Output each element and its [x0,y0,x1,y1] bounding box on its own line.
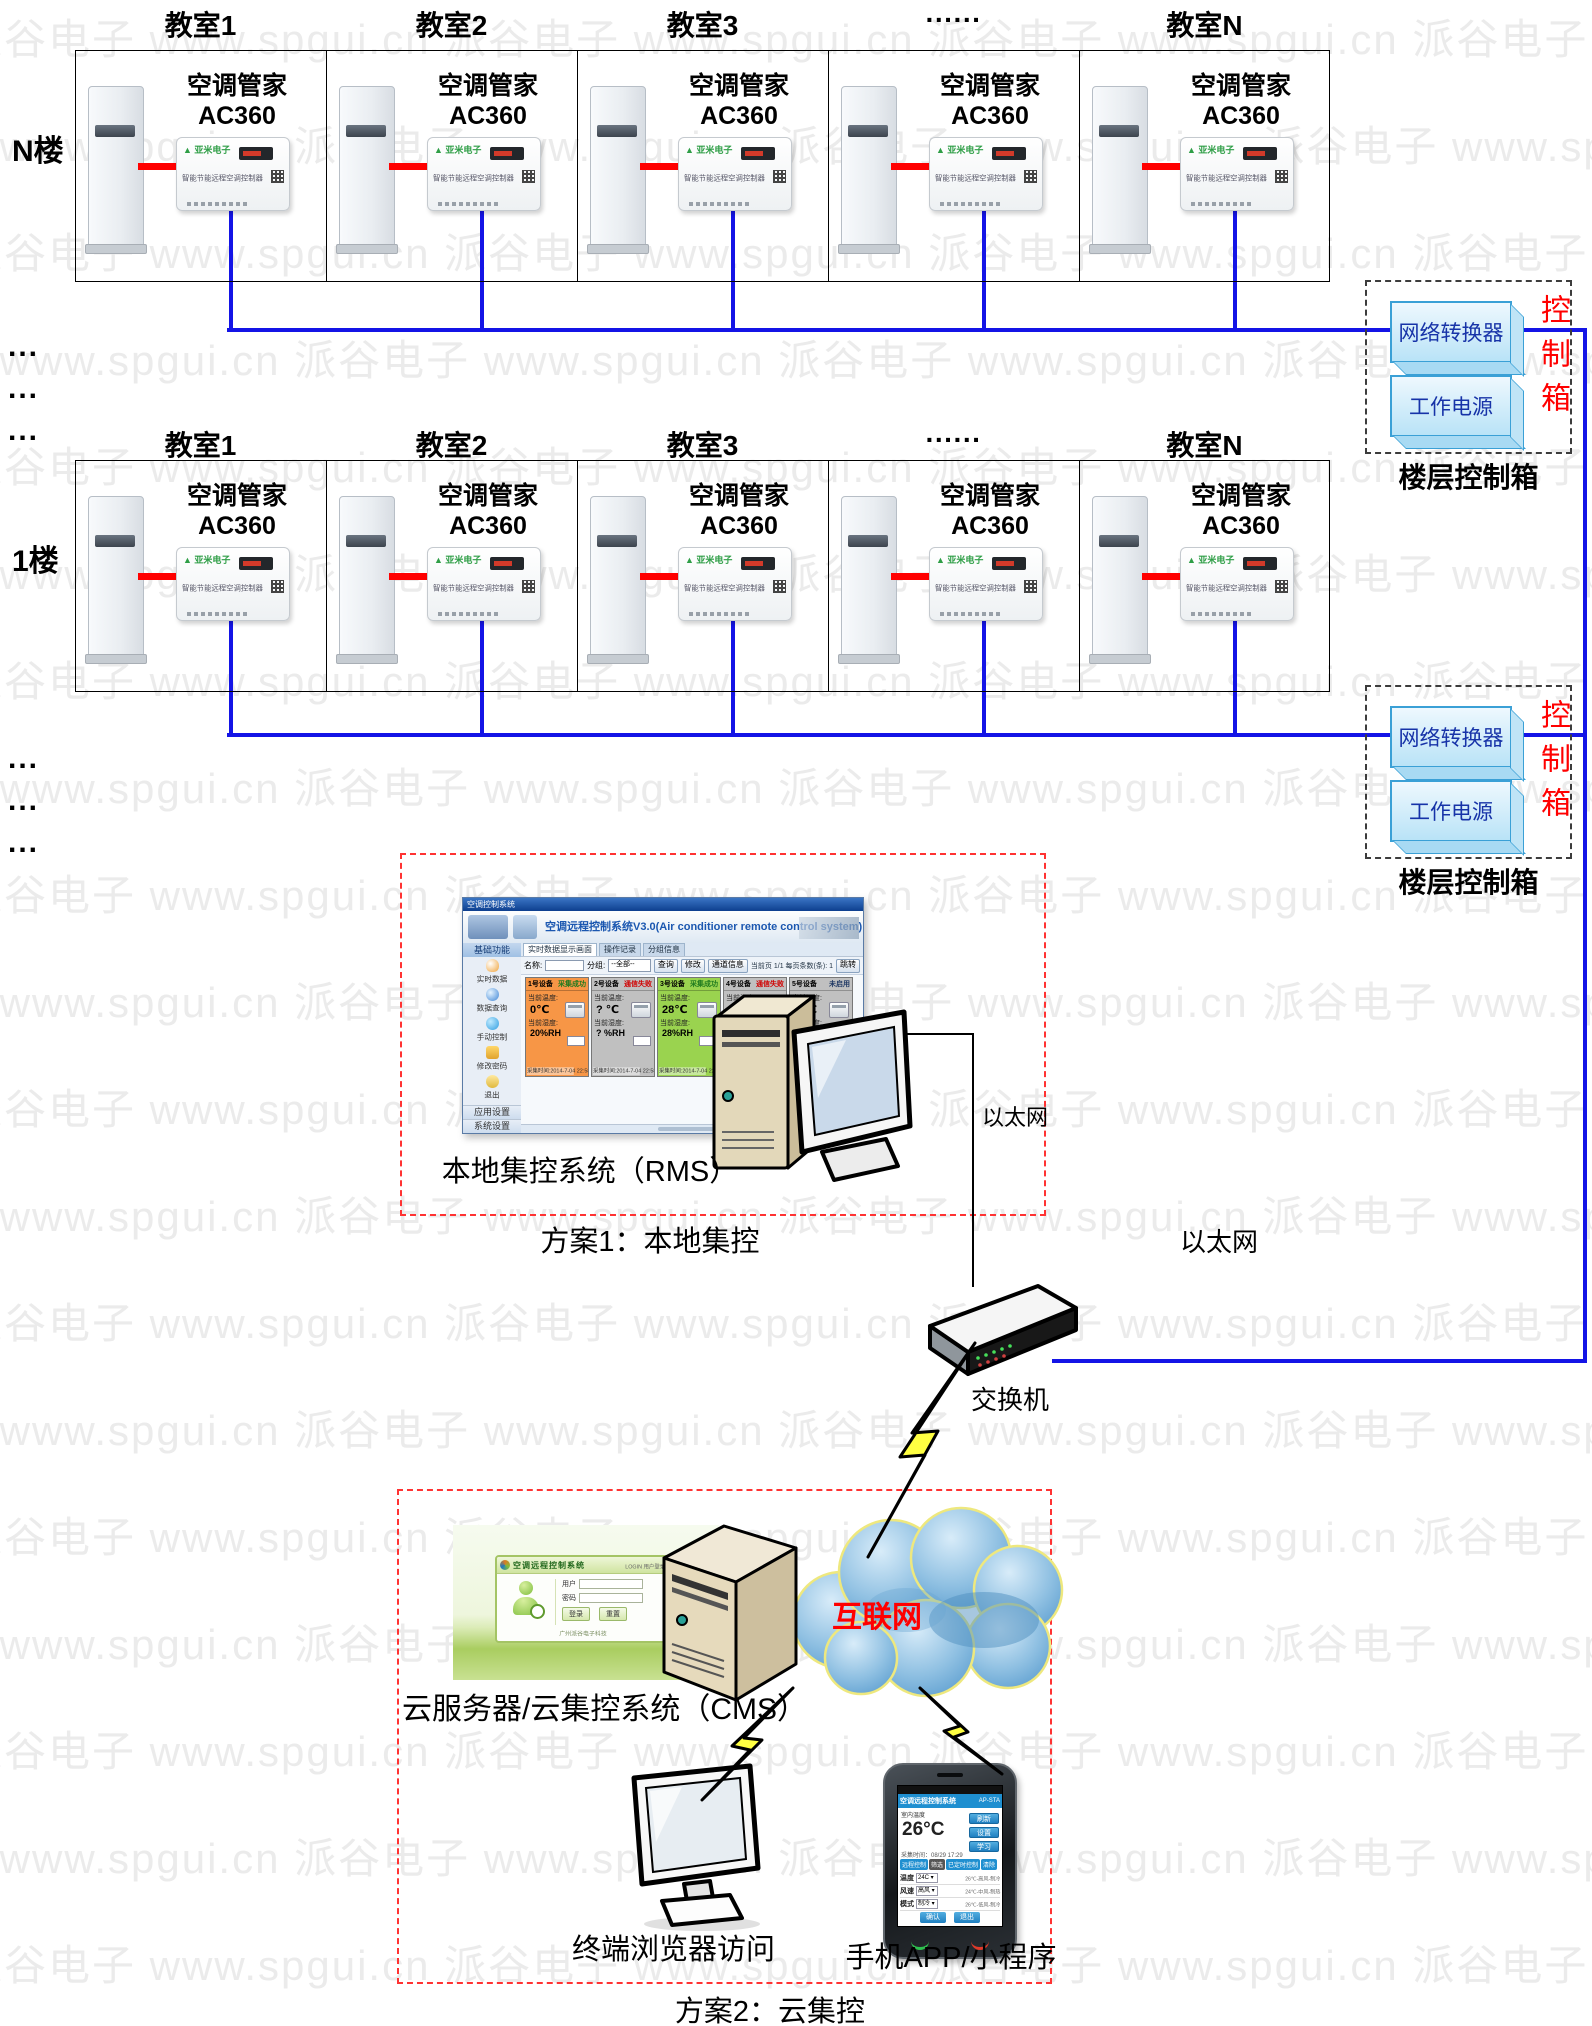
cms-login-header: 空调远程控制系统 LOGIN 用户登录 [497,1557,669,1574]
ac360-label-line1: 空调管家 [403,71,573,101]
classroom-header: 教室N [1079,424,1330,464]
ac360-label-line1: 空调管家 [654,481,824,511]
search-icon [486,988,499,1001]
device-name: 2号设备 [594,979,619,990]
app-row-select[interactable]: 24C ▾ [916,1873,938,1883]
ac-to-controller-cable [138,573,178,580]
ac360-controller-image: ▲ 亚米电子智能节能远程空调控制器 [929,547,1043,621]
air-conditioner-image [88,496,144,658]
cms-user-label: 用户 [562,1579,576,1589]
air-conditioner-image [339,86,395,248]
ac360-label-line1: 空调管家 [905,71,1075,101]
cms-title: 空调远程控制系统 [513,1560,585,1571]
power-supply-box: 工作电源 [1390,780,1512,842]
led-display-icon [992,557,1026,570]
app-row-key: 模式 [900,1899,914,1909]
rms-nav-item[interactable]: 修改密码 [463,1044,521,1073]
brand-logo-icon: ▲ 亚米电子 [434,143,481,156]
qr-code-icon [271,170,284,183]
power-supply-box: 工作电源 [1390,375,1512,437]
watermark-text: 派谷电子 www.spgui.cn 派谷电子 www.spgui.cn 派谷电子… [0,755,1592,816]
rms-group-label: 分组: [587,960,605,971]
rms-logo-icon [468,915,508,939]
ac-to-controller-cable [640,573,680,580]
ac-to-controller-cable [389,573,429,580]
device-card-header: 2号设备通信失败 [592,978,654,991]
rms-channel-button[interactable]: 通道信息 [708,959,748,973]
scheme2-label: 方案2：云集控 [640,1988,900,2026]
rms-sidebar-bottom: 应用设置系统设置 [463,1105,521,1133]
ac360-label: 空调管家AC360 [1156,71,1326,131]
device-name: 3号设备 [660,979,685,990]
led-display-icon [490,557,524,570]
cms-login-panel: 空调远程控制系统 LOGIN 用户登录 用户 密码 登录 重置 广州派谷电子科技 [495,1555,671,1643]
led-display-icon [992,147,1026,160]
app-control-rows: 温度24C ▾26℃-高风-制冷风速高风 ▾24℃-中风-制热模式制冷 ▾26℃… [900,1872,1000,1911]
rms-nav-item[interactable]: 手动控制 [463,1015,521,1044]
ac360-label: 空调管家AC360 [654,481,824,541]
device-sample-time: 采集时间:2014-7-04 22:58:42 [527,1067,574,1075]
ac360-label-line2: AC360 [654,511,824,541]
ac360-label-line1: 空调管家 [1156,71,1326,101]
brand-logo-icon: ▲ 亚米电子 [183,143,230,156]
ac-mini-icon [631,1002,651,1018]
cms-footer: 广州派谷电子科技 [510,1630,656,1639]
rms-nav-item[interactable]: 实时数据 [463,957,521,986]
qr-code-icon [1024,580,1037,593]
device-name: 1号设备 [528,979,553,990]
qr-code-icon [1275,580,1288,593]
ac360-label-line1: 空调管家 [1156,481,1326,511]
classroom-row: 空调管家AC360▲ 亚米电子智能节能远程空调控制器空调管家AC360▲ 亚米电… [75,50,1330,282]
app-button[interactable]: 学习 [969,1841,999,1852]
ac360-controller-image: ▲ 亚米电子智能节能远程空调控制器 [678,137,792,211]
classroom-cell: 空调管家AC360▲ 亚米电子智能节能远程空调控制器 [1080,461,1331,691]
app-button[interactable]: 设置 [969,1827,999,1838]
rms-header: 空调远程控制系统V3.0(Air conditioner remote cont… [463,911,863,944]
ac360-label-line1: 空调管家 [152,71,322,101]
ac-to-controller-cable [891,573,931,580]
brand-logo-icon: ▲ 亚米电子 [1187,553,1234,566]
app-header: 空调远程控制系统 AP-STA [898,1794,1002,1808]
classroom-row: 空调管家AC360▲ 亚米电子智能节能远程空调控制器空调管家AC360▲ 亚米电… [75,460,1330,692]
scheme1-label: 方案1：本地集控 [460,1218,840,1260]
classroom-header: ······ [828,4,1079,36]
classroom-header: 教室1 [75,424,326,464]
app-row-preset: 26℃-低风-制冷 [965,1900,1000,1908]
phone-status-bar [898,1786,1002,1794]
rms-tab[interactable]: 分组信息 [643,943,685,956]
rms-nav-label: 手动控制 [467,1031,516,1042]
ac-to-controller-cable [1142,163,1182,170]
led-display-icon [1243,147,1277,160]
app-control-row: 风速高风 ▾24℃-中风-制热 [900,1885,1000,1898]
ethernet-label-small: 以太网 [982,1100,1048,1132]
ac360-controller-image: ▲ 亚米电子智能节能远程空调控制器 [176,137,290,211]
ac360-label: 空调管家AC360 [905,71,1075,131]
led-display-icon [741,557,775,570]
cms-caption: 云服务器/云集控系统（CMS） [402,1684,807,1728]
app-buttons: 刷新设置学习 [969,1813,999,1852]
ac360-controller-image: ▲ 亚米电子智能节能远程空调控制器 [1180,137,1294,211]
wireless-link-bolt [902,1682,1017,1782]
internet-label: 互联网 [832,1592,922,1636]
air-conditioner-image [88,86,144,248]
controller-text: 智能节能远程空调控制器 [182,583,261,593]
rms-jump-button[interactable]: 跳转 [836,959,860,973]
device-card: 2号设备通信失败当前温度:? ℃当前湿度:? %RH采集时间:2014-7-04… [591,977,655,1077]
ethernet-label: 以太网 [1180,1222,1258,1259]
classroom-cell: 空调管家AC360▲ 亚米电子智能节能远程空调控制器 [829,51,1080,281]
classroom-header: 教室2 [326,424,577,464]
watermark-text: 派谷电子 www.spgui.cn 派谷电子 www.spgui.cn 派谷电子… [0,1397,1592,1458]
brand-logo-icon: ▲ 亚米电子 [183,553,230,566]
brand-logo-icon: ▲ 亚米电子 [434,553,481,566]
floor-ellipsis: ... [8,742,39,776]
classroom-cell: 空调管家AC360▲ 亚米电子智能节能远程空调控制器 [76,461,327,691]
cms-login-button[interactable]: 登录 [562,1607,590,1621]
ac360-label: 空调管家AC360 [654,71,824,131]
ac-to-controller-cable [891,163,931,170]
rms-modify-button[interactable]: 修改 [681,959,705,973]
rms-sidebar: 基础功能 实时数据数据查询手动控制修改密码退出 应用设置系统设置 [463,943,522,1133]
app-row-preset: 24℃-中风-制热 [965,1887,1000,1895]
qr-code-icon [522,170,535,183]
rms-group-select[interactable]: --全部-- [608,959,651,972]
floor-ellipsis: ... [8,330,39,364]
rms-nav-label: 实时数据 [467,973,516,984]
ac360-label: 空调管家AC360 [403,481,573,541]
app-tab-chip[interactable]: 远程控制 [900,1859,928,1870]
cms-pwd-input[interactable] [579,1593,643,1603]
control-box-side-label: 控制箱 [1530,294,1574,426]
ac360-controller-image: ▲ 亚米电子智能节能远程空调控制器 [427,137,541,211]
rms-query-button[interactable]: 查询 [654,959,678,973]
classroom-header: 教室3 [577,424,828,464]
ac360-label-line1: 空调管家 [654,71,824,101]
app-temperature: 26°C [902,1819,944,1841]
classroom-header: 教室N [1079,4,1330,44]
floor-ellipsis: ... [8,826,39,860]
ac360-controller-image: ▲ 亚米电子智能节能远程空调控制器 [929,137,1043,211]
classroom-cell: 空调管家AC360▲ 亚米电子智能节能远程空调控制器 [327,461,578,691]
floor-1-bus-cable [227,733,1390,737]
classroom-cell: 空调管家AC360▲ 亚米电子智能节能远程空调控制器 [327,51,578,281]
app-control-row: 温度24C ▾26℃-高风-制冷 [900,1872,1000,1885]
ac360-label-line2: AC360 [654,101,824,131]
ac360-label-line2: AC360 [152,101,322,131]
classroom-cell: 空调管家AC360▲ 亚米电子智能节能远程空调控制器 [578,51,829,281]
wireless-link-bolt [850,1335,1000,1565]
controller-text: 智能节能远程空调控制器 [935,173,1014,183]
rms-sidebar-header: 基础功能 [463,943,521,957]
floor-ellipsis: ... [8,372,39,406]
cms-logo-icon [500,1560,510,1570]
watermark-text: 派谷电子 www.spgui.cn 派谷电子 www.spgui.cn 派谷电子… [0,1290,1592,1351]
classroom-cell: 空调管家AC360▲ 亚米电子智能节能远程空调控制器 [1080,51,1331,281]
riser-cable [1583,328,1587,1363]
floor-control-box-n: 网络转换器 工作电源 控制箱 [1365,280,1572,454]
qr-code-icon [522,580,535,593]
arrow-icon [486,1017,499,1030]
network-converter-box: 网络转换器 [1390,301,1512,363]
watermark-text: 派谷电子 www.spgui.cn 派谷电子 www.spgui.cn 派谷电子… [0,327,1592,388]
device-status: 通信失败 [624,979,652,990]
ac-to-controller-cable [1142,573,1182,580]
app-row-key: 温度 [900,1873,914,1883]
floor-n-bus-cable [227,328,1390,332]
controller-text: 智能节能远程空调控制器 [182,173,261,183]
ac360-label: 空调管家AC360 [1156,481,1326,541]
app-action-button[interactable]: 退出 [954,1912,980,1923]
classroom-cell: 空调管家AC360▲ 亚米电子智能节能远程空调控制器 [578,461,829,691]
diagram-canvas: 派谷电子 www.spgui.cn 派谷电子 www.spgui.cn 派谷电子… [0,0,1592,2026]
power-supply-label: 工作电源 [1409,796,1493,826]
ac360-label-line2: AC360 [152,511,322,541]
air-conditioner-image [841,496,897,658]
network-converter-label: 网络转换器 [1399,317,1504,347]
power-supply-label: 工作电源 [1409,391,1493,421]
brand-logo-icon: ▲ 亚米电子 [936,143,983,156]
controller-text: 智能节能远程空调控制器 [433,583,512,593]
cloud-server-image [652,1512,807,1702]
qr-code-icon [1275,170,1288,183]
app-row-select[interactable]: 高风 ▾ [916,1886,938,1896]
floor-control-box-1: 网络转换器 工作电源 控制箱 [1365,685,1572,859]
controller-text: 智能节能远程空调控制器 [935,583,1014,593]
ac360-label: 空调管家AC360 [152,71,322,131]
mobile-phone-image: 空调远程控制系统 AP-STA 室内温度 26°C 刷新设置学习 采集时间：08… [883,1763,1017,1959]
switch-uplink-cable [1052,1359,1587,1363]
ac360-label-line1: 空调管家 [152,481,322,511]
app-tab-chip[interactable]: 清除 [981,1859,997,1870]
ac360-controller-image: ▲ 亚米电子智能节能远程空调控制器 [427,547,541,621]
app-action-button[interactable]: 确认 [920,1912,946,1923]
ac360-label-line2: AC360 [403,101,573,131]
browser-caption: 终端浏览器访问 [566,1926,781,1968]
ac-to-controller-cable [138,163,178,170]
ac360-label-line2: AC360 [905,101,1075,131]
rms-tab[interactable]: 操作记录 [599,943,641,956]
ac360-label: 空调管家AC360 [152,481,322,541]
floor-ellipsis: ... [8,414,39,448]
brand-logo-icon: ▲ 亚米电子 [685,553,732,566]
ac360-controller-image: ▲ 亚米电子智能节能远程空调控制器 [678,547,792,621]
controller-text: 智能节能远程空调控制器 [433,173,512,183]
clock-icon [530,1604,545,1619]
rms-nav-list: 实时数据数据查询手动控制修改密码退出 [463,957,521,1102]
brand-logo-icon: ▲ 亚米电子 [936,553,983,566]
rms-name-input[interactable] [545,960,584,971]
user-avatar-icon [509,1581,543,1623]
rms-logo2-icon [513,915,537,939]
floor-ellipsis: ... [8,784,39,818]
rms-toolbar: 名称: 分组: --全部-- 查询 修改 通道信息 当前页 1/1 每页条数(条… [521,957,863,975]
rms-page-info: 当前页 1/1 每页条数(条): 1 [751,961,833,971]
brand-logo-icon: ▲ 亚米电子 [685,143,732,156]
cloud-icon [486,959,499,972]
device-card-header: 1号设备采集成功 [526,978,588,991]
floor-control-box-caption: 楼层控制箱 [1365,456,1572,496]
phone-app-screen: 空调远程控制系统 AP-STA 室内温度 26°C 刷新设置学习 采集时间：08… [897,1785,1003,1927]
app-actions: 确认退出 [898,1912,1002,1923]
rms-name-label: 名称: [524,960,542,971]
device-mini-select [567,1036,585,1046]
app-button[interactable]: 刷新 [969,1813,999,1824]
app-row-preset: 26℃-高风-制冷 [965,1874,1000,1882]
device-card: 1号设备采集成功当前温度:0℃当前湿度:20%RH采集时间:2014-7-04 … [525,977,589,1077]
network-converter-label: 网络转换器 [1399,722,1504,752]
ac360-label-line2: AC360 [1156,511,1326,541]
rms-nav-label: 修改密码 [467,1060,516,1071]
floor-control-box-caption: 楼层控制箱 [1365,861,1572,901]
device-status: 采集成功 [558,979,586,990]
ac360-label-line2: AC360 [1156,101,1326,131]
controller-text: 智能节能远程空调控制器 [1186,583,1265,593]
floor-label: N楼 [12,126,64,170]
air-conditioner-image [1092,496,1148,658]
classroom-header: ······ [828,424,1079,456]
app-mode-label: AP-STA [979,1798,1000,1804]
rms-tab[interactable]: 实时数据显示画面 [523,943,597,956]
air-conditioner-image [339,496,395,658]
ac-to-controller-cable [640,163,680,170]
cms-user-input[interactable] [579,1579,643,1589]
ac360-label: 空调管家AC360 [905,481,1075,541]
cms-login-form: 用户 密码 登录 重置 [555,1579,643,1625]
app-tab-chip[interactable]: 已定时控制 [946,1859,980,1870]
air-conditioner-image [841,86,897,248]
floor-label: 1楼 [12,536,59,580]
classroom-header: 教室1 [75,4,326,44]
ac360-label-line2: AC360 [403,511,573,541]
rms-header-art [799,917,859,939]
ac360-label-line1: 空调管家 [905,481,1075,511]
rms-tab-bar: 实时数据显示画面操作记录分组信息 [521,943,863,957]
rms-nav-label: 退出 [467,1089,516,1100]
qr-code-icon [1024,170,1037,183]
classroom-cell: 空调管家AC360▲ 亚米电子智能节能远程空调控制器 [76,51,327,281]
ac-to-controller-cable [389,163,429,170]
rms-nav-item[interactable]: 退出 [463,1073,521,1102]
air-conditioner-image [590,496,646,658]
app-row-key: 风速 [900,1886,914,1896]
app-row-select[interactable]: 制冷 ▾ [916,1899,938,1909]
device-sample-time: 采集时间:2014-7-04 22:58:27 [593,1067,640,1075]
ac360-controller-image: ▲ 亚米电子智能节能远程空调控制器 [1180,547,1294,621]
qr-code-icon [773,580,786,593]
rms-nav-item[interactable]: 数据查询 [463,986,521,1015]
led-display-icon [239,557,273,570]
rms-sidebar-bottom-bar[interactable]: 系统设置 [463,1119,521,1133]
controller-text: 智能节能远程空调控制器 [1186,173,1265,183]
brand-logo-icon: ▲ 亚米电子 [1187,143,1234,156]
ac360-label-line1: 空调管家 [403,481,573,511]
network-converter-box: 网络转换器 [1390,706,1512,768]
air-conditioner-image [1092,86,1148,248]
qr-code-icon [271,580,284,593]
lock-icon [486,1046,499,1059]
ethernet-cable [972,1033,974,1287]
rms-titlebar: 空调控制系统 [463,898,863,911]
app-caption: 手机APP/小程序 [836,1934,1066,1976]
control-box-side-label: 控制箱 [1530,699,1574,831]
rms-nav-label: 数据查询 [467,1002,516,1013]
ac360-label: 空调管家AC360 [403,71,573,131]
rms-caption: 本地集控系统（RMS） [410,1148,770,1190]
air-conditioner-image [590,86,646,248]
app-tab-bar: 远程控制筛选已定时控制清除 [900,1859,1000,1870]
ac360-label-line2: AC360 [905,511,1075,541]
app-control-row: 模式制冷 ▾26℃-低风-制冷 [900,1898,1000,1911]
switch-label: 交换机 [950,1380,1070,1417]
classroom-cell: 空调管家AC360▲ 亚米电子智能节能远程空调控制器 [829,461,1080,691]
qr-code-icon [773,170,786,183]
app-sample-time: 采集时间：08/29 17:29 [901,1850,963,1859]
led-display-icon [1243,557,1277,570]
cms-pwd-label: 密码 [562,1593,576,1603]
rms-sidebar-bottom-bar[interactable]: 应用设置 [463,1105,521,1119]
led-display-icon [239,147,273,160]
app-title: 空调远程控制系统 [900,1796,956,1806]
led-display-icon [490,147,524,160]
controller-text: 智能节能远程空调控制器 [684,173,763,183]
exit-icon [486,1075,499,1088]
cms-reset-button[interactable]: 重置 [599,1607,627,1621]
controller-text: 智能节能远程空调控制器 [684,583,763,593]
classroom-header: 教室3 [577,4,828,44]
led-display-icon [741,147,775,160]
app-tab-chip[interactable]: 筛选 [929,1859,945,1870]
ac-mini-icon [565,1002,585,1018]
classroom-header: 教室2 [326,4,577,44]
ac360-controller-image: ▲ 亚米电子智能节能远程空调控制器 [176,547,290,621]
device-mini-select [633,1036,651,1046]
